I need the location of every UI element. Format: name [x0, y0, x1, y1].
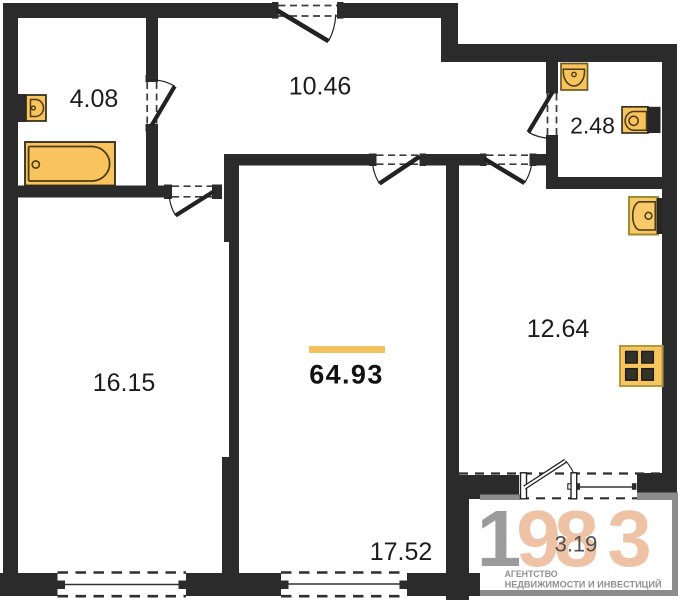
svg-text:64.93: 64.93: [309, 360, 384, 390]
svg-text:3: 3: [607, 494, 652, 583]
svg-text:17.52: 17.52: [370, 538, 433, 566]
svg-text:4.08: 4.08: [70, 85, 119, 113]
svg-text:3.19: 3.19: [555, 532, 598, 557]
svg-text:АГЕНТСТВО: АГЕНТСТВО: [505, 569, 558, 579]
svg-text:16.15: 16.15: [93, 369, 156, 397]
svg-text:НЕДВИЖИМОСТИ И ИНВЕСТИЦИЙ: НЕДВИЖИМОСТИ И ИНВЕСТИЦИЙ: [505, 578, 662, 590]
svg-text:12.64: 12.64: [527, 315, 590, 343]
svg-text:2.48: 2.48: [570, 113, 615, 139]
svg-text:10.46: 10.46: [289, 73, 352, 101]
